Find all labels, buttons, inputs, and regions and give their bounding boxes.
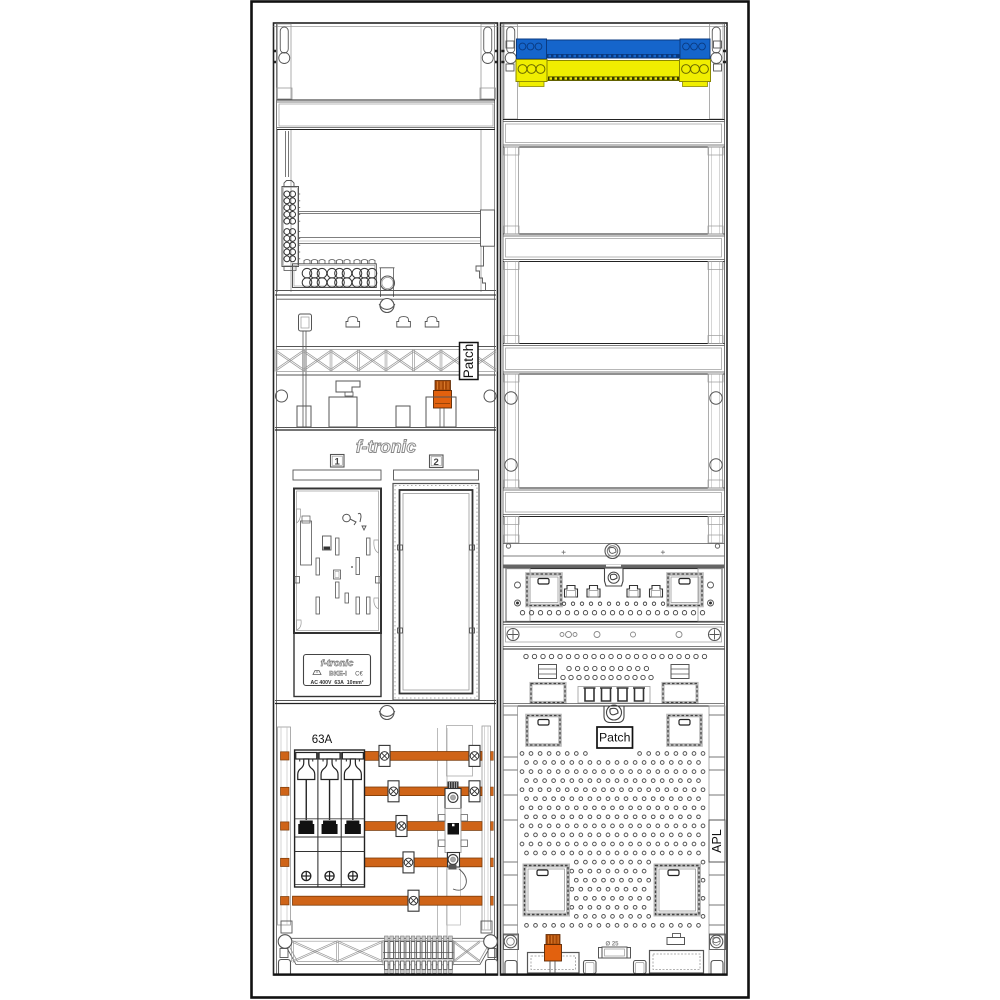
svg-text:f-tronic: f-tronic <box>356 437 417 457</box>
svg-text:2: 2 <box>434 457 439 468</box>
svg-text:f-tronic: f-tronic <box>321 658 354 669</box>
svg-text:AC 400V 63A 10mm²: AC 400V 63A 10mm² <box>310 680 363 686</box>
svg-text:Patch: Patch <box>599 731 631 745</box>
svg-text:1: 1 <box>335 456 341 467</box>
svg-text:C€: C€ <box>355 672 363 678</box>
svg-text:BKE-I: BKE-I <box>329 671 347 678</box>
svg-text:APL: APL <box>710 829 724 853</box>
svg-text:63A: 63A <box>312 734 333 746</box>
svg-text:Patch: Patch <box>461 344 476 379</box>
